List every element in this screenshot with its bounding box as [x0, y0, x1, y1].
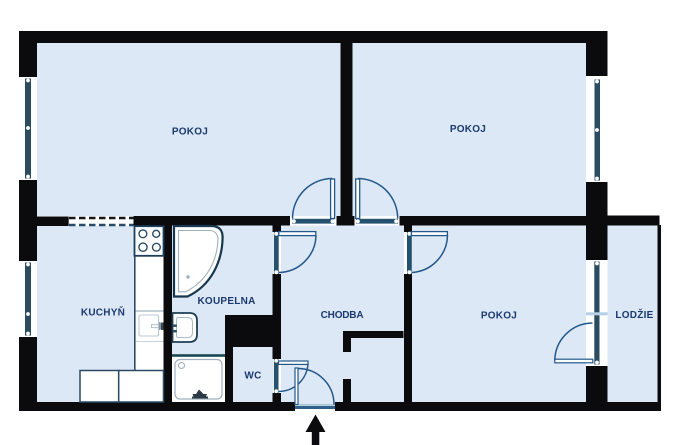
- svg-text:POKOJ: POKOJ: [481, 311, 517, 322]
- svg-text:CHODBA: CHODBA: [321, 310, 364, 321]
- svg-text:KOUPELNA: KOUPELNA: [197, 296, 255, 307]
- svg-text:POKOJ: POKOJ: [172, 126, 208, 137]
- svg-text:KUCHYŇ: KUCHYŇ: [81, 305, 125, 318]
- svg-text:WC: WC: [244, 371, 261, 382]
- svg-text:LODŽIE: LODŽIE: [615, 308, 653, 321]
- svg-text:POKOJ: POKOJ: [450, 124, 486, 135]
